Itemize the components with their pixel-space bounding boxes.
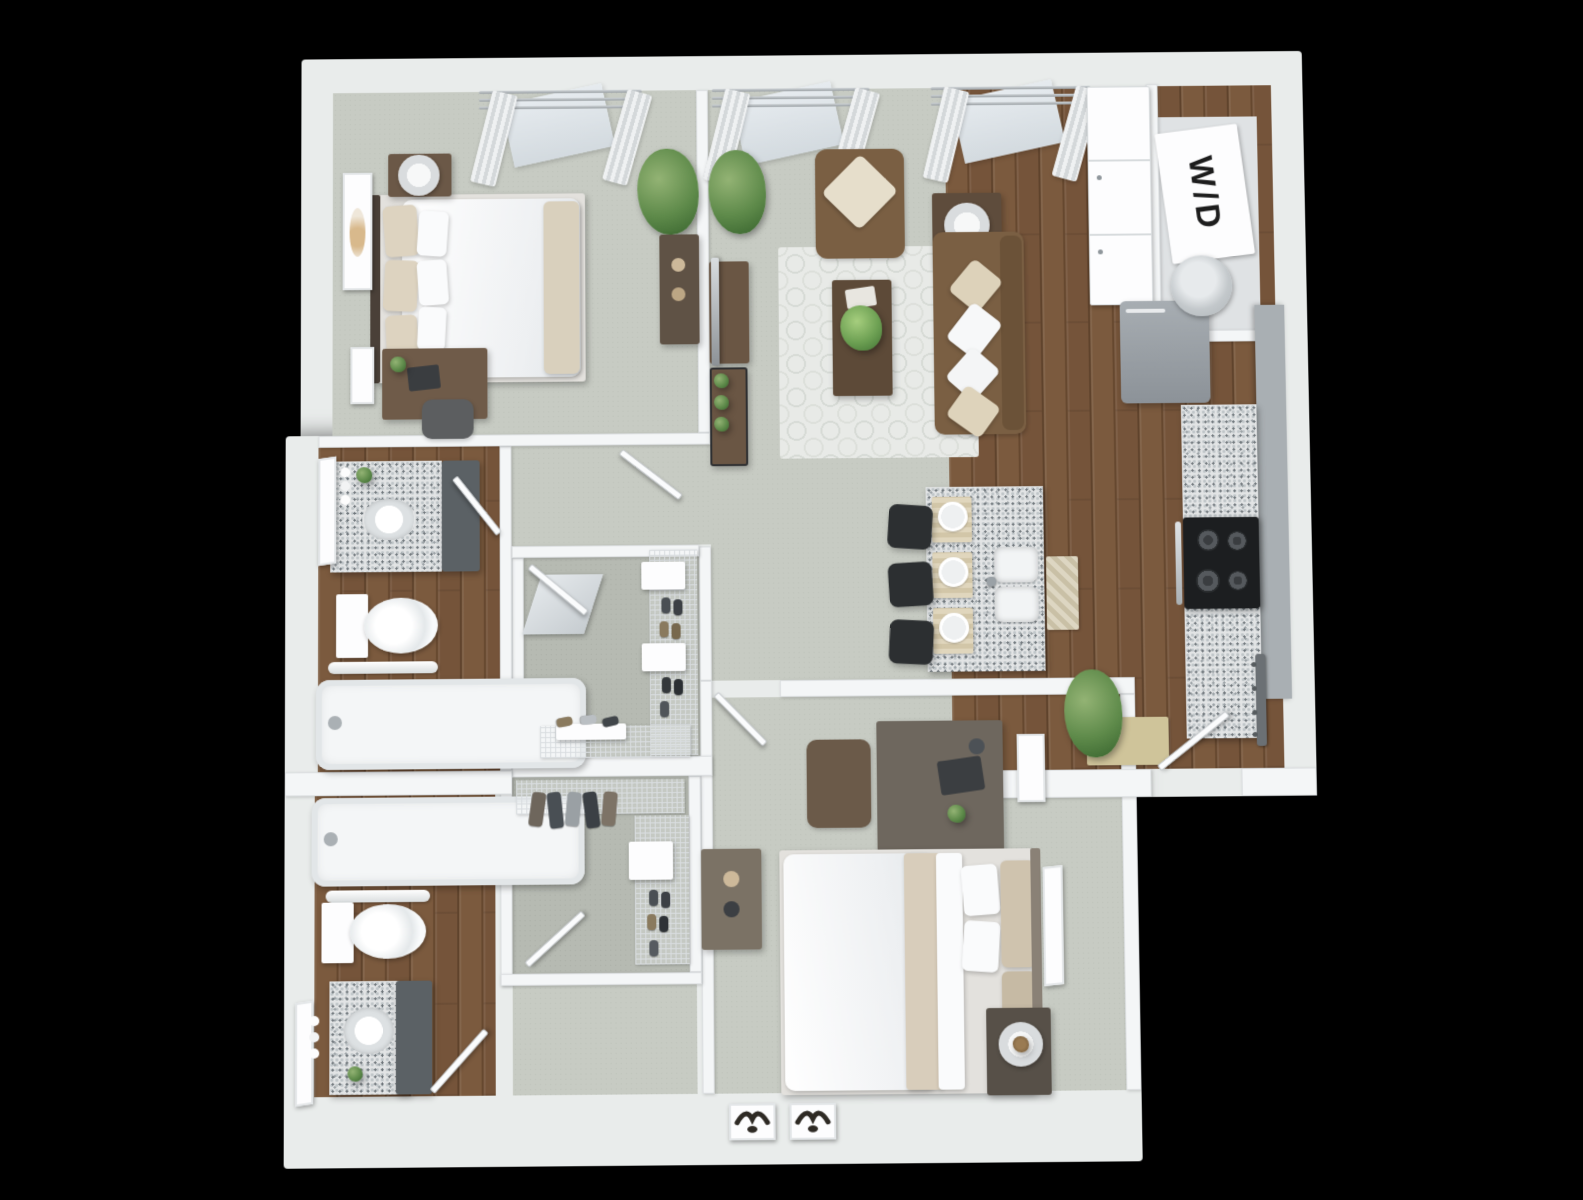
bed1-pillow — [383, 260, 419, 312]
stove-burner — [1228, 571, 1248, 591]
cabinet-knob — [1098, 249, 1103, 254]
bar-stool — [889, 619, 935, 665]
coat-hook-rail — [1255, 654, 1267, 746]
bed2-pillow — [960, 863, 1000, 916]
bed2-wall-art — [1017, 734, 1046, 802]
bed1-laptop — [407, 364, 441, 391]
bed1-pillow — [382, 204, 419, 257]
shoe — [674, 679, 683, 695]
bed1-wall-art-small — [350, 347, 374, 404]
bed2-desk-plant — [947, 805, 965, 823]
bed1-desk-plant — [390, 356, 406, 372]
bed1-blanket-fold — [543, 201, 579, 374]
art-abstract — [350, 208, 366, 257]
island-sink-basin — [995, 586, 1039, 622]
shoe — [659, 916, 668, 932]
shoe — [661, 892, 670, 908]
shelf-plant — [714, 395, 729, 410]
bird-icon — [792, 1105, 835, 1136]
bath1-toiletries — [340, 467, 350, 477]
cabinet-knob — [1097, 175, 1102, 180]
closet1-shelf-box — [642, 643, 686, 671]
coat-hook — [1251, 662, 1256, 667]
plate — [938, 557, 968, 587]
fridge-handle — [1126, 309, 1166, 313]
bedroom1-window-curtains — [479, 87, 642, 197]
apartment-floorplan: W/D — [0, 5, 1583, 1200]
bed2-dresser — [701, 849, 762, 950]
bath1-vanity-plant — [356, 467, 372, 483]
bath1-sink — [362, 498, 416, 540]
shoe — [673, 599, 682, 615]
bath1-towel-bar — [328, 661, 438, 674]
wall-between-bathrooms — [285, 770, 513, 796]
shoe — [649, 940, 658, 956]
sink-faucet — [986, 577, 996, 587]
wall-closet2-south — [501, 972, 702, 986]
dresser-vase — [723, 901, 739, 917]
shelf-plant — [714, 373, 729, 388]
shoe — [661, 597, 670, 613]
cabinet-door-line — [1089, 159, 1150, 161]
shoe — [660, 701, 669, 717]
shoe — [647, 914, 656, 930]
floorplan-stage: W/D — [0, 0, 1583, 1200]
closet2-wire-shelving-east — [635, 815, 690, 965]
bed1-pillow — [417, 307, 447, 351]
bed1-table-lamp — [398, 155, 440, 196]
bath2-vanity-cabinet — [396, 981, 432, 1095]
bath2-towel-bar — [326, 890, 430, 903]
bed2-pillow — [962, 920, 1001, 973]
dresser-vase — [723, 871, 739, 887]
closet2-shelf-box — [629, 841, 673, 880]
bed2-laptop — [937, 755, 986, 795]
bed1-wall-art — [343, 173, 373, 291]
wall-living-closet1 — [699, 546, 712, 680]
dresser-vase — [672, 287, 686, 301]
bar-stool — [887, 561, 934, 607]
bed2-desk-chair — [806, 739, 871, 828]
plate — [939, 613, 969, 643]
washer-dryer-label: W/D — [1183, 154, 1227, 234]
stove-burner — [1196, 569, 1220, 593]
bed1-desk-chair — [422, 399, 474, 439]
bird-art-frame — [729, 1103, 776, 1140]
bar-stool — [887, 504, 933, 550]
stove — [1183, 517, 1260, 609]
kitchen-window-curtains — [931, 83, 1092, 193]
shoe — [649, 890, 658, 906]
tv — [711, 258, 720, 366]
hanging-clothes — [601, 791, 618, 826]
pantry-cabinet — [1086, 86, 1153, 305]
dresser-vase — [671, 258, 685, 272]
bath1-mirror — [318, 456, 336, 566]
plate — [938, 502, 968, 532]
island-sink-basin — [994, 547, 1038, 583]
bed2-leaning-art — [1042, 865, 1064, 986]
coffee-table-plant — [840, 305, 882, 351]
cabinet-door-line — [1090, 233, 1151, 235]
bed2-sheet-fold — [936, 853, 965, 1090]
bird-icon — [731, 1105, 774, 1136]
bed2-desk-mug — [969, 738, 985, 754]
shelf-plant — [714, 417, 729, 432]
hallway2-floor — [513, 984, 698, 1095]
coat-hook — [1253, 732, 1258, 737]
bath2-sink — [343, 1007, 393, 1054]
bath2-toiletries — [309, 1016, 319, 1026]
window-shade — [501, 83, 615, 168]
shoe — [672, 623, 681, 639]
stove-burner — [1227, 531, 1247, 551]
wall-kitchen-south-right — [1241, 767, 1317, 796]
kitchen-runner-rug — [1046, 556, 1079, 630]
tub-faucet — [328, 716, 342, 730]
bath2-vanity-plant — [347, 1066, 362, 1081]
bed1-pillow — [416, 259, 449, 306]
stove-burner — [1197, 529, 1219, 551]
sofa-back — [1000, 235, 1025, 430]
bird-art-frame — [790, 1103, 837, 1140]
laundry-basket — [1170, 255, 1233, 316]
bed1-pillow — [416, 210, 449, 257]
bed2-planter-sprig — [1013, 1036, 1029, 1052]
shoe — [662, 677, 671, 693]
bath1-vanity-cabinet — [442, 460, 480, 571]
tub-faucet — [324, 832, 338, 846]
closet1-shelf-box — [641, 562, 685, 590]
shoe — [660, 621, 669, 637]
coat-hook — [1252, 710, 1257, 715]
wall-closet2-east — [689, 776, 702, 972]
coat-hook — [1252, 686, 1257, 691]
